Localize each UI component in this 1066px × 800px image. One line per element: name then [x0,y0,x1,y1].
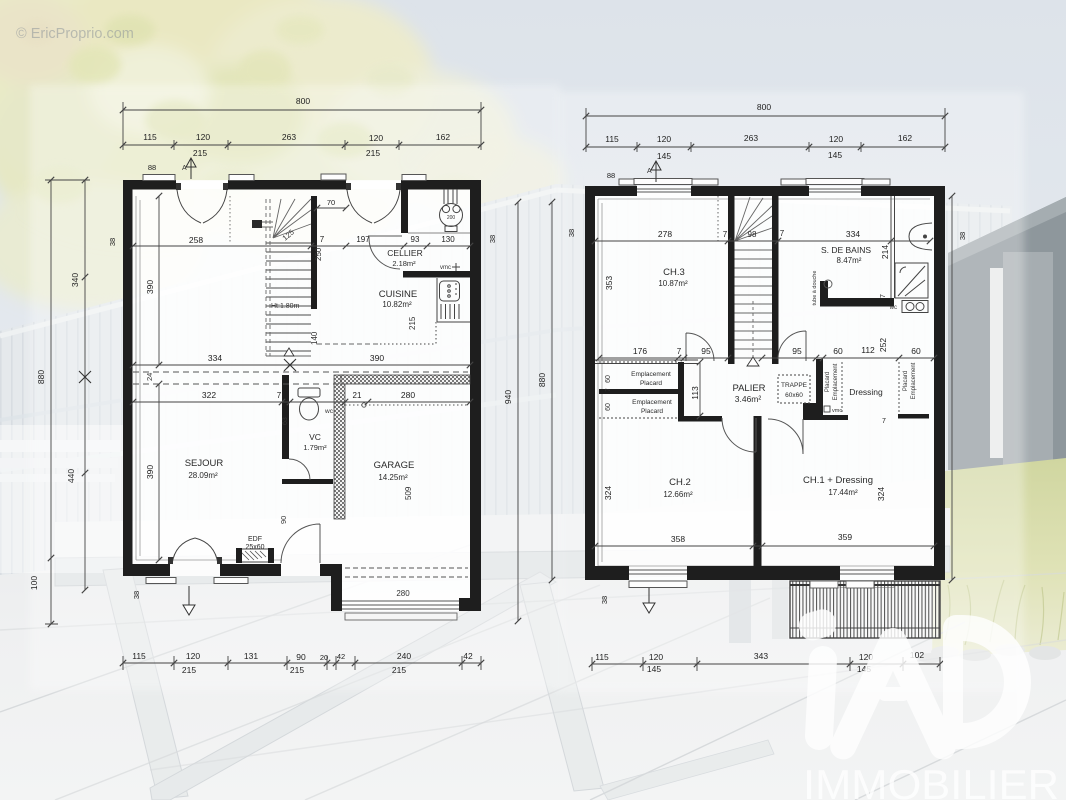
svg-text:115: 115 [605,134,619,144]
svg-text:60: 60 [833,346,843,356]
svg-text:800: 800 [757,102,771,112]
svg-text:880: 880 [36,370,46,384]
svg-text:14.25m²: 14.25m² [378,473,408,482]
svg-text:115: 115 [595,652,609,662]
svg-text:Emplacement: Emplacement [632,399,672,406]
svg-text:CUISINE: CUISINE [379,289,418,300]
svg-text:340: 340 [70,273,80,287]
svg-text:115: 115 [143,132,157,142]
svg-text:Emplacement: Emplacement [911,362,917,399]
svg-text:215: 215 [408,316,417,330]
svg-text:940: 940 [503,390,513,404]
svg-text:Ht:1.80m: Ht:1.80m [271,303,300,310]
svg-text:CH.2: CH.2 [669,477,691,488]
svg-text:38: 38 [958,232,967,240]
svg-text:215: 215 [193,148,207,158]
svg-text:38: 38 [600,596,609,604]
svg-text:CH.1 + Dressing: CH.1 + Dressing [803,475,873,486]
svg-text:60x60: 60x60 [785,392,803,399]
svg-text:7: 7 [277,391,282,400]
svg-text:A: A [182,165,187,172]
svg-text:38: 38 [132,591,141,599]
svg-text:Placard: Placard [825,372,831,392]
svg-text:324: 324 [603,486,613,500]
svg-text:95: 95 [701,346,711,356]
svg-text:197: 197 [356,235,370,244]
svg-text:25x60: 25x60 [245,544,264,551]
svg-text:CH.3: CH.3 [663,267,685,278]
svg-text:wc: wc [889,305,897,311]
svg-text:7: 7 [754,533,759,542]
svg-text:200: 200 [447,215,456,221]
svg-text:440: 440 [66,469,76,483]
svg-text:880: 880 [537,373,547,387]
svg-text:113: 113 [690,386,700,400]
svg-text:A: A [647,168,652,175]
svg-text:280: 280 [396,589,410,598]
svg-text:324: 324 [876,487,886,501]
svg-text:EDF: EDF [248,536,262,543]
svg-text:120: 120 [829,134,843,144]
svg-text:17.44m²: 17.44m² [828,488,858,497]
svg-text:63: 63 [282,417,289,425]
svg-text:334: 334 [208,353,222,363]
svg-text:130: 130 [441,235,455,244]
svg-text:343: 343 [754,651,768,661]
svg-text:12.66m²: 12.66m² [663,490,693,499]
svg-text:88: 88 [607,171,615,180]
svg-text:120: 120 [649,652,663,662]
svg-text:145: 145 [647,664,661,674]
svg-text:240: 240 [397,651,411,661]
svg-text:145: 145 [828,150,842,160]
svg-text:Emplacement: Emplacement [833,363,839,400]
svg-text:38: 38 [108,238,117,246]
svg-text:88: 88 [148,163,156,172]
svg-text:120: 120 [369,133,383,143]
svg-text:214: 214 [880,245,890,259]
svg-text:7: 7 [677,347,682,356]
svg-text:250: 250 [314,247,323,261]
svg-text:90: 90 [279,516,288,524]
svg-text:322: 322 [202,390,216,400]
svg-text:wc: wc [324,408,334,415]
svg-text:42: 42 [337,652,345,661]
svg-text:263: 263 [282,132,296,142]
svg-text:131: 131 [244,651,258,661]
svg-text:145: 145 [657,151,671,161]
svg-text:28.09m²: 28.09m² [188,471,218,480]
svg-text:120: 120 [186,651,200,661]
svg-text:PALIER: PALIER [732,383,765,394]
svg-text:7: 7 [780,229,785,238]
svg-text:70: 70 [327,198,335,207]
svg-text:10.82m²: 10.82m² [382,300,412,309]
svg-text:3.46m²: 3.46m² [735,394,762,404]
svg-text:215: 215 [290,665,304,675]
svg-text:278: 278 [658,229,672,239]
svg-text:7: 7 [882,418,886,425]
svg-text:258: 258 [189,235,203,245]
svg-text:38: 38 [567,229,576,237]
svg-text:98: 98 [748,230,757,239]
svg-text:115: 115 [132,651,146,661]
svg-text:Emplacement: Emplacement [631,371,671,378]
svg-text:20: 20 [320,653,328,662]
svg-text:176: 176 [633,346,647,356]
svg-text:8.47m²: 8.47m² [837,256,862,265]
svg-text:390: 390 [370,353,384,363]
svg-text:162: 162 [898,133,912,143]
svg-text:VC: VC [309,432,321,442]
svg-text:140: 140 [310,331,319,345]
svg-text:Placard: Placard [640,380,662,387]
svg-text:215: 215 [182,665,196,675]
svg-text:252: 252 [878,338,888,352]
svg-text:353: 353 [604,276,614,290]
svg-text:42: 42 [463,651,473,661]
svg-text:60: 60 [605,403,612,411]
svg-text:Placard: Placard [641,408,663,415]
svg-text:7: 7 [880,294,887,298]
svg-text:359: 359 [838,532,852,542]
svg-text:vmc: vmc [832,408,842,414]
svg-text:263: 263 [744,133,758,143]
svg-text:2.18m²: 2.18m² [392,259,416,268]
svg-text:60: 60 [605,375,612,383]
svg-text:21: 21 [353,391,362,400]
svg-text:S. DE BAINS: S. DE BAINS [821,245,871,255]
svg-text:Placard: Placard [903,371,909,391]
svg-text:CELLIER: CELLIER [387,248,422,258]
svg-text:215: 215 [392,665,406,675]
svg-text:280: 280 [401,390,415,400]
svg-text:95: 95 [792,346,802,356]
svg-text:Dressing: Dressing [849,387,883,397]
svg-text:1.79m²: 1.79m² [303,443,327,452]
svg-text:38: 38 [488,235,497,243]
svg-text:tube à douche: tube à douche [812,271,818,306]
svg-text:GARAGE: GARAGE [374,460,415,471]
svg-text:© EricProprio.com: © EricProprio.com [16,26,134,42]
svg-text:90: 90 [296,652,306,662]
svg-text:24: 24 [145,373,154,381]
svg-text:334: 334 [846,229,860,239]
svg-text:vmc: vmc [440,265,451,271]
svg-text:100: 100 [29,576,39,590]
svg-text:112: 112 [861,345,875,355]
svg-text:215: 215 [366,148,380,158]
svg-text:10.87m²: 10.87m² [658,279,688,288]
svg-text:120: 120 [196,132,210,142]
svg-text:93: 93 [411,235,420,244]
svg-text:60: 60 [911,346,921,356]
svg-text:390: 390 [145,465,155,479]
svg-text:TRAPPE: TRAPPE [781,382,808,389]
svg-text:509: 509 [404,486,413,500]
svg-text:SEJOUR: SEJOUR [185,458,224,469]
svg-text:7: 7 [320,235,325,244]
svg-text:390: 390 [145,280,155,294]
svg-text:358: 358 [671,534,685,544]
svg-text:120: 120 [657,134,671,144]
svg-text:162: 162 [436,132,450,142]
svg-text:IMMOBILIER: IMMOBILIER [803,761,1059,800]
svg-text:7: 7 [723,230,728,239]
svg-text:800: 800 [296,96,310,106]
